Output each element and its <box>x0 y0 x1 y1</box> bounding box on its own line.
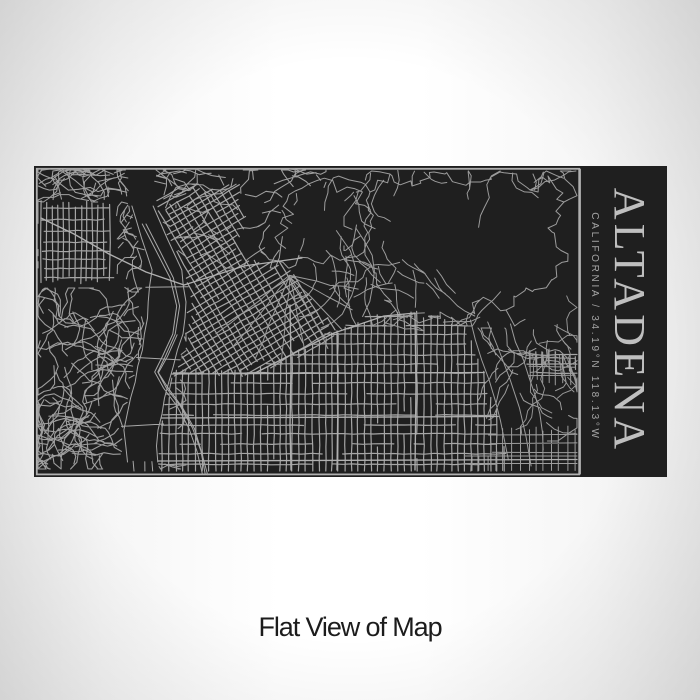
svg-text:ALTADENA: ALTADENA <box>605 187 654 453</box>
svg-text:CALIFORNIA / 34.19°N 118.13°W: CALIFORNIA / 34.19°N 118.13°W <box>589 212 600 440</box>
